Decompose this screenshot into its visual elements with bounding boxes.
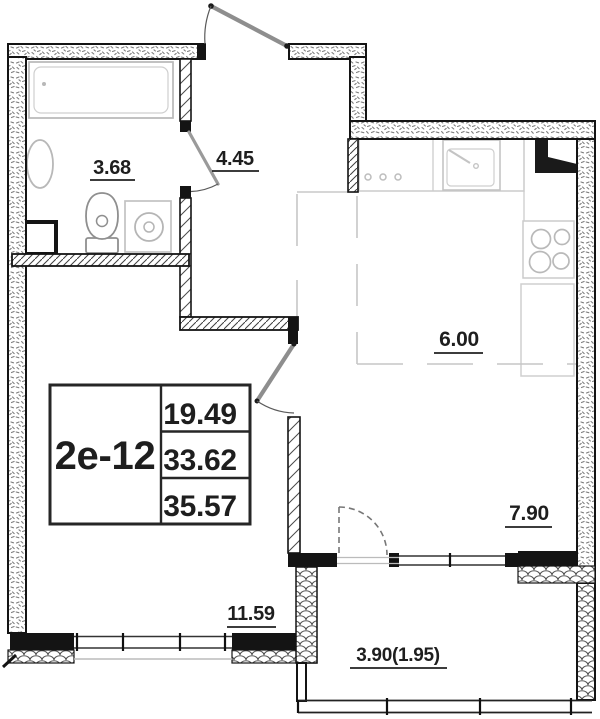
wall-bathroom-bottom — [12, 254, 189, 266]
wall-balcony-left-column — [296, 567, 317, 663]
wall-bottom-right-seg — [232, 633, 296, 650]
balcony-window — [337, 553, 505, 567]
door-post-living — [288, 317, 298, 344]
wall-bottom-left-seg — [10, 633, 74, 650]
living-room-area-label: 11.59 — [227, 603, 275, 625]
living-room-door — [255, 342, 297, 414]
vent-duct — [535, 140, 577, 173]
total-area-value: 35.57 — [163, 490, 237, 523]
living-area-value: 19.49 — [163, 398, 237, 431]
wall-balcony-post1 — [389, 553, 399, 567]
washing-machine — [125, 201, 171, 252]
apartment-area-value: 33.62 — [163, 444, 237, 477]
wall-bathroom-right-upper — [180, 59, 191, 121]
room-area-label: 7.90 — [509, 502, 549, 525]
bathroom-area-label: 3.68 — [93, 157, 131, 179]
bathtub — [29, 62, 173, 118]
wall-left — [8, 57, 26, 633]
toilet — [86, 193, 118, 253]
wall-hall-kitchen — [348, 139, 358, 192]
wall-balcony-seg2 — [518, 551, 577, 566]
kitchen-sink — [443, 140, 500, 190]
balcony-glazing — [298, 698, 592, 715]
wall-balcony-seg1 — [288, 553, 337, 567]
wall-balcony-post2 — [505, 553, 519, 567]
entry-door-post-left — [197, 44, 205, 59]
floor-plan-page: 3.68 4.45 6.00 7.90 11.59 3.90(1.95) 2е-… — [0, 0, 600, 719]
bathroom-door-post-bottom — [180, 186, 191, 198]
floor-plan: 3.68 4.45 6.00 7.90 11.59 3.90(1.95) 2е-… — [0, 0, 600, 719]
fridge — [521, 284, 574, 376]
wall-top-left — [8, 44, 205, 59]
wall-balcony-left-thin — [297, 663, 306, 701]
hallway-area-label: 4.45 — [216, 148, 254, 170]
living-room-window — [74, 633, 232, 659]
kitchen-area-label: 6.00 — [439, 328, 479, 351]
bathroom-door-post-top — [180, 121, 191, 132]
balcony-area-label: 3.90(1.95) — [356, 645, 440, 666]
entry-door — [205, 3, 290, 49]
wall-hallway-bottom — [180, 317, 298, 330]
insulation-balcony-corner — [518, 566, 595, 583]
balcony-door — [339, 507, 387, 555]
walls — [3, 44, 595, 701]
unit-label: 2е-12 — [55, 434, 156, 478]
bathroom-sink — [27, 140, 53, 188]
wall-partition-living — [288, 417, 300, 553]
bathroom-door — [189, 132, 218, 192]
wall-right — [577, 139, 595, 583]
windows — [74, 553, 592, 715]
wall-right-balcony — [577, 583, 595, 700]
info-box: 2е-12 19.49 33.62 35.57 — [50, 385, 250, 524]
wall-kitchen-top — [350, 121, 595, 139]
stove — [523, 221, 574, 278]
bathtub-drain — [42, 82, 46, 86]
insulation-left — [8, 650, 74, 663]
